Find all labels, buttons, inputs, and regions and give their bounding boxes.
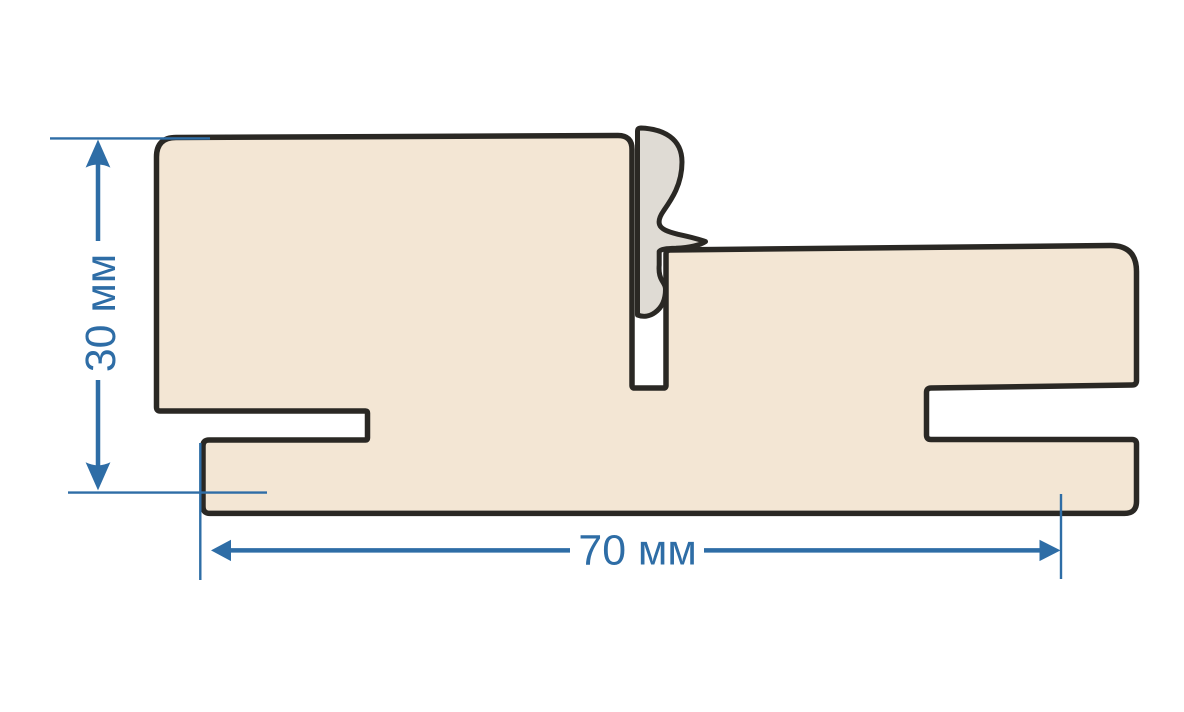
- svg-text:30 мм: 30 мм: [77, 254, 125, 372]
- svg-text:70 мм: 70 мм: [578, 527, 696, 575]
